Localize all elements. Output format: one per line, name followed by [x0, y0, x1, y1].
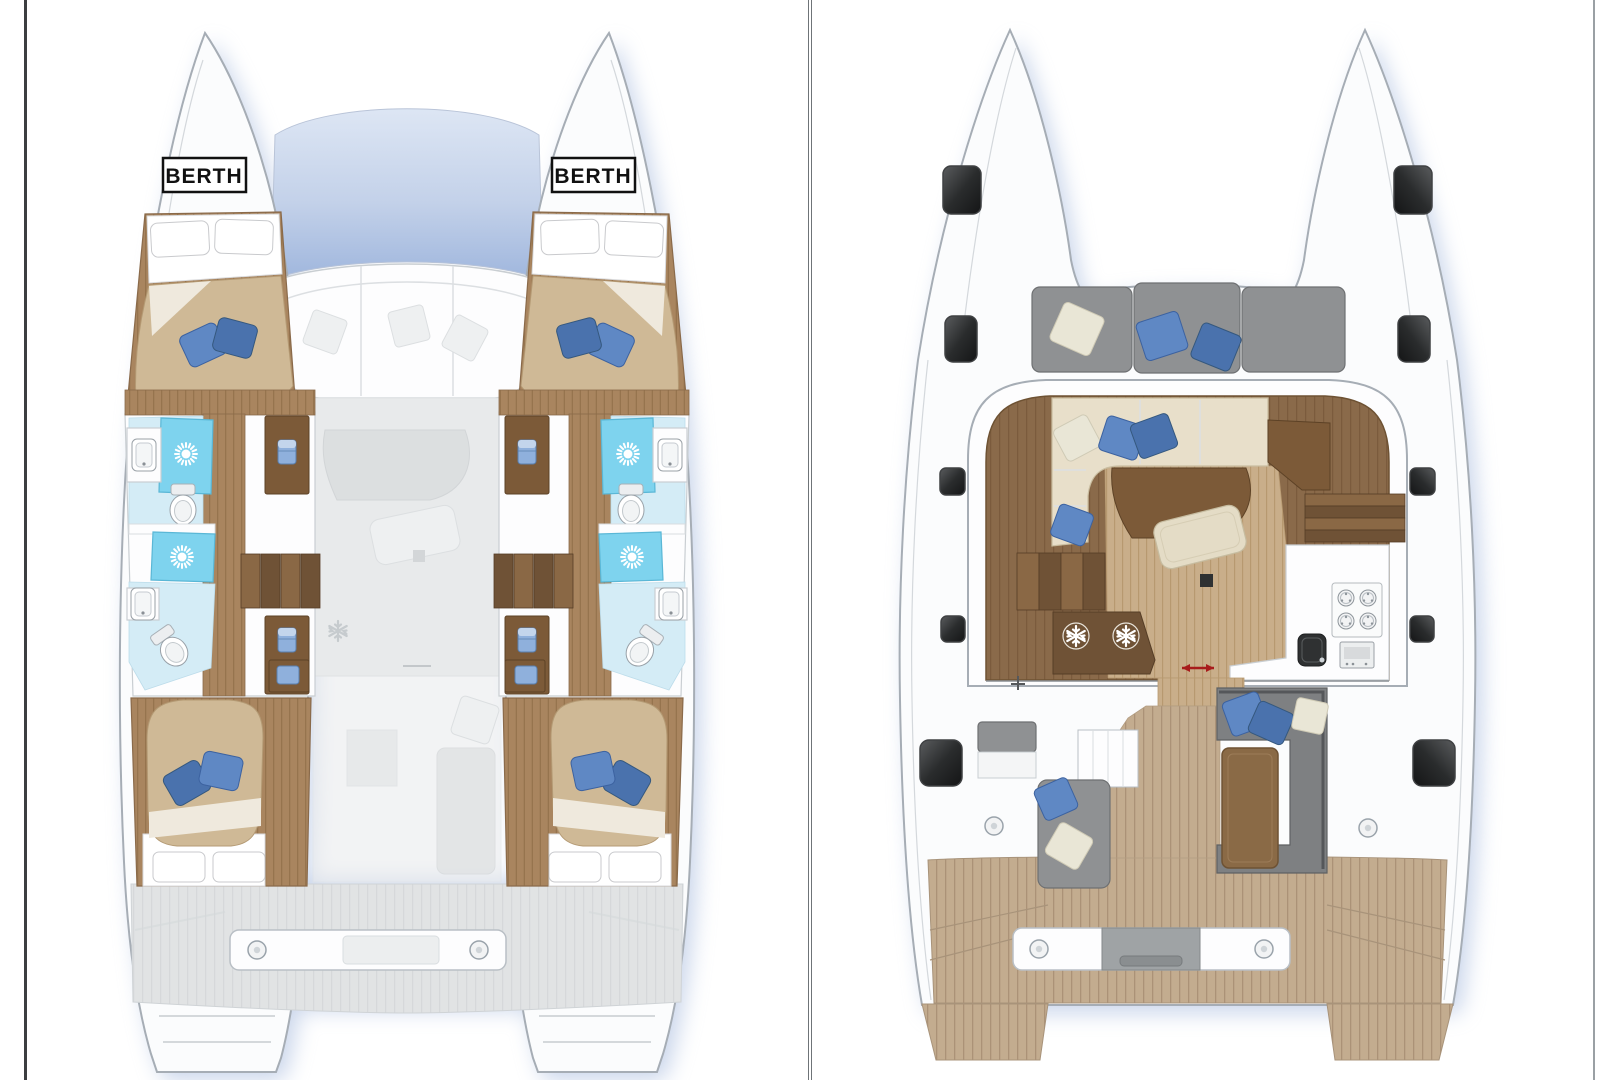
transom-beam: [230, 930, 506, 970]
stove-icon: [1332, 583, 1382, 637]
transom-beam: [1013, 928, 1290, 970]
fridge-cabinet: [1053, 612, 1155, 674]
deck-fitting-icon: [248, 941, 266, 959]
starboard-stairs: [1305, 494, 1405, 542]
main-deck-plan: [810, 0, 1595, 1080]
berth-label-port-text: BERTH: [165, 165, 242, 188]
lower-deck-plan: BERTH BERTH: [25, 0, 810, 1080]
port-swim-platform: [922, 1004, 1048, 1060]
catamaran-layout-page: { "page": {"background":"#ffffff"}, "pal…: [0, 0, 1620, 1080]
cockpit-chaise: [1033, 776, 1110, 888]
berth-label-port: BERTH: [163, 158, 246, 192]
cockpit-table: [1222, 748, 1278, 868]
forward-coachroof-window: [271, 109, 543, 280]
ghost-cockpit-above: [313, 676, 501, 882]
cockpit-steps: [1078, 730, 1138, 787]
deck-fitting-icon: [470, 941, 488, 959]
berth-label-starboard: BERTH: [552, 158, 635, 192]
deck-fitting-icon: [1030, 940, 1048, 958]
helm-seat: [978, 722, 1036, 778]
deck-fitting-icon: [985, 817, 1003, 835]
berth-label-starboard-text: BERTH: [554, 165, 631, 188]
cream-pillow: [1291, 697, 1329, 735]
starboard-swim-platform: [1327, 1004, 1453, 1060]
deck-fitting-icon: [1255, 940, 1273, 958]
sink-icon: [1298, 634, 1326, 666]
port-stairs: [1017, 553, 1105, 610]
table-leg-mount: [1200, 574, 1213, 587]
oven-icon: [1340, 642, 1374, 668]
deck-fitting-icon: [1359, 819, 1377, 837]
forward-lounge: [1032, 283, 1345, 373]
ghost-saloon-above: [310, 398, 506, 676]
